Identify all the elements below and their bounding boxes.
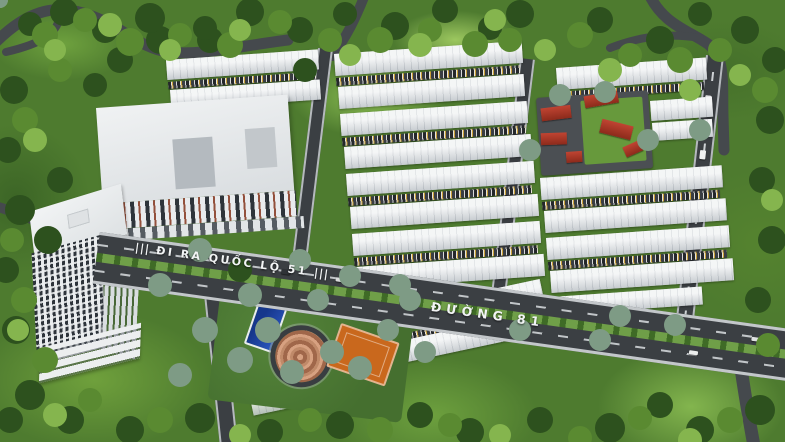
spiral-plaza <box>272 327 330 385</box>
development-area <box>0 0 785 442</box>
sports-court <box>326 323 400 387</box>
car <box>613 316 621 321</box>
car <box>335 277 343 282</box>
car <box>699 150 706 160</box>
direction-marks-icon: ||| <box>313 266 330 281</box>
red-roof-building <box>541 132 567 145</box>
school-facility <box>536 90 653 176</box>
court-markings <box>336 332 390 377</box>
red-roof-building <box>540 105 571 122</box>
taxi-car <box>395 285 403 290</box>
car <box>751 337 759 342</box>
red-roof-building <box>566 151 583 163</box>
apartment-courtyard <box>245 127 278 169</box>
tower-rooftop-box <box>67 208 90 229</box>
aerial-masterplan-rendering: ||| ĐI RA QUỐC LỘ 51 ||| ĐƯỜNG 81 <box>0 0 785 442</box>
apartment-courtyard <box>172 137 215 190</box>
direction-marks-icon: ||| <box>134 241 151 256</box>
